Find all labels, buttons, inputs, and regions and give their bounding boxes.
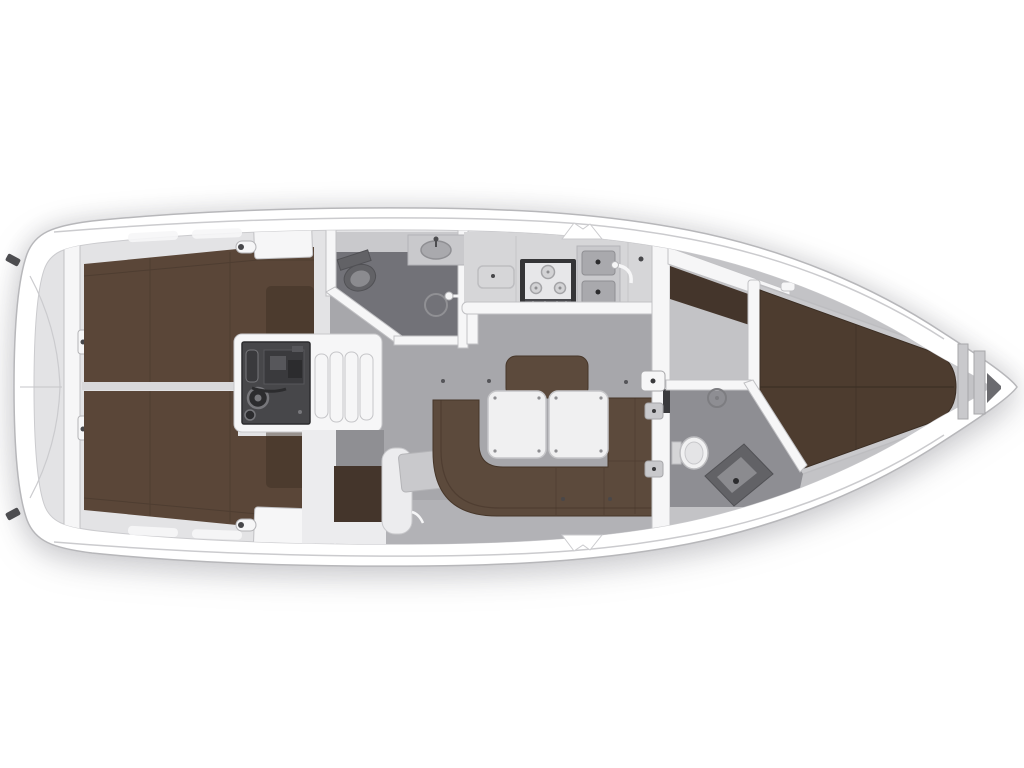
galley-locker-dot — [491, 274, 495, 278]
forward-bulkhead-latch-dot — [651, 379, 656, 384]
galley-front-edge — [462, 302, 658, 314]
nav-niche — [336, 430, 384, 468]
engine-part-b — [288, 360, 302, 378]
yacht-floorplan — [0, 0, 1024, 768]
deck-slat-bottom-2 — [192, 529, 242, 540]
galley-counter-dot — [639, 257, 644, 262]
engine-pulley — [245, 410, 255, 420]
forward-head-wall-top — [666, 380, 751, 390]
sink-lower-drain — [596, 290, 601, 295]
interior — [64, 215, 992, 553]
nav-seat-back — [334, 466, 386, 524]
midship-winch-port-dot — [238, 244, 244, 250]
stern-cleat-port — [5, 253, 21, 267]
step-tread-3 — [345, 352, 358, 422]
forward-head-drain-dot — [715, 396, 719, 400]
engine-detail-dot — [298, 410, 302, 414]
step-tread-4 — [360, 354, 373, 420]
yacht-floorplan-canvas — [0, 0, 1024, 768]
engine-part-c — [292, 346, 303, 352]
nav-side-column — [302, 430, 336, 546]
midship-winch-starboard-dot — [238, 522, 244, 528]
anchor-locker-partition-1 — [958, 344, 968, 419]
aft-head-wall-bottom — [394, 336, 468, 345]
stove-burner-center-dot — [547, 271, 550, 274]
sink-upper-drain — [596, 260, 601, 265]
aft-bulkhead-wall — [64, 230, 80, 544]
step-tread-2 — [330, 352, 343, 422]
settee-latch-lower-dot — [652, 467, 656, 471]
forward-head-toilet-seat — [685, 442, 703, 464]
anchor-locker-partition-2 — [974, 351, 985, 414]
aft-head-wall-left — [326, 230, 336, 296]
stove-burner-left-dot — [535, 287, 538, 290]
salon-table-right — [549, 391, 608, 458]
engine-cylinder — [246, 350, 258, 382]
aft-head-hand-shower — [445, 292, 453, 300]
stove-burner-right-dot — [559, 287, 562, 290]
stern-cleat-starboard — [5, 507, 21, 521]
engine-part-a — [270, 356, 286, 370]
engine-flywheel-hub — [255, 395, 262, 402]
galley-faucet-base — [612, 262, 619, 269]
forward-head-vanity-faucet — [733, 478, 739, 484]
salon-table-left — [488, 391, 546, 458]
deck-slat-top-2 — [192, 228, 242, 239]
step-tread-1 — [315, 354, 328, 418]
settee-latch-upper-dot — [652, 409, 656, 413]
nav-base — [334, 522, 386, 546]
